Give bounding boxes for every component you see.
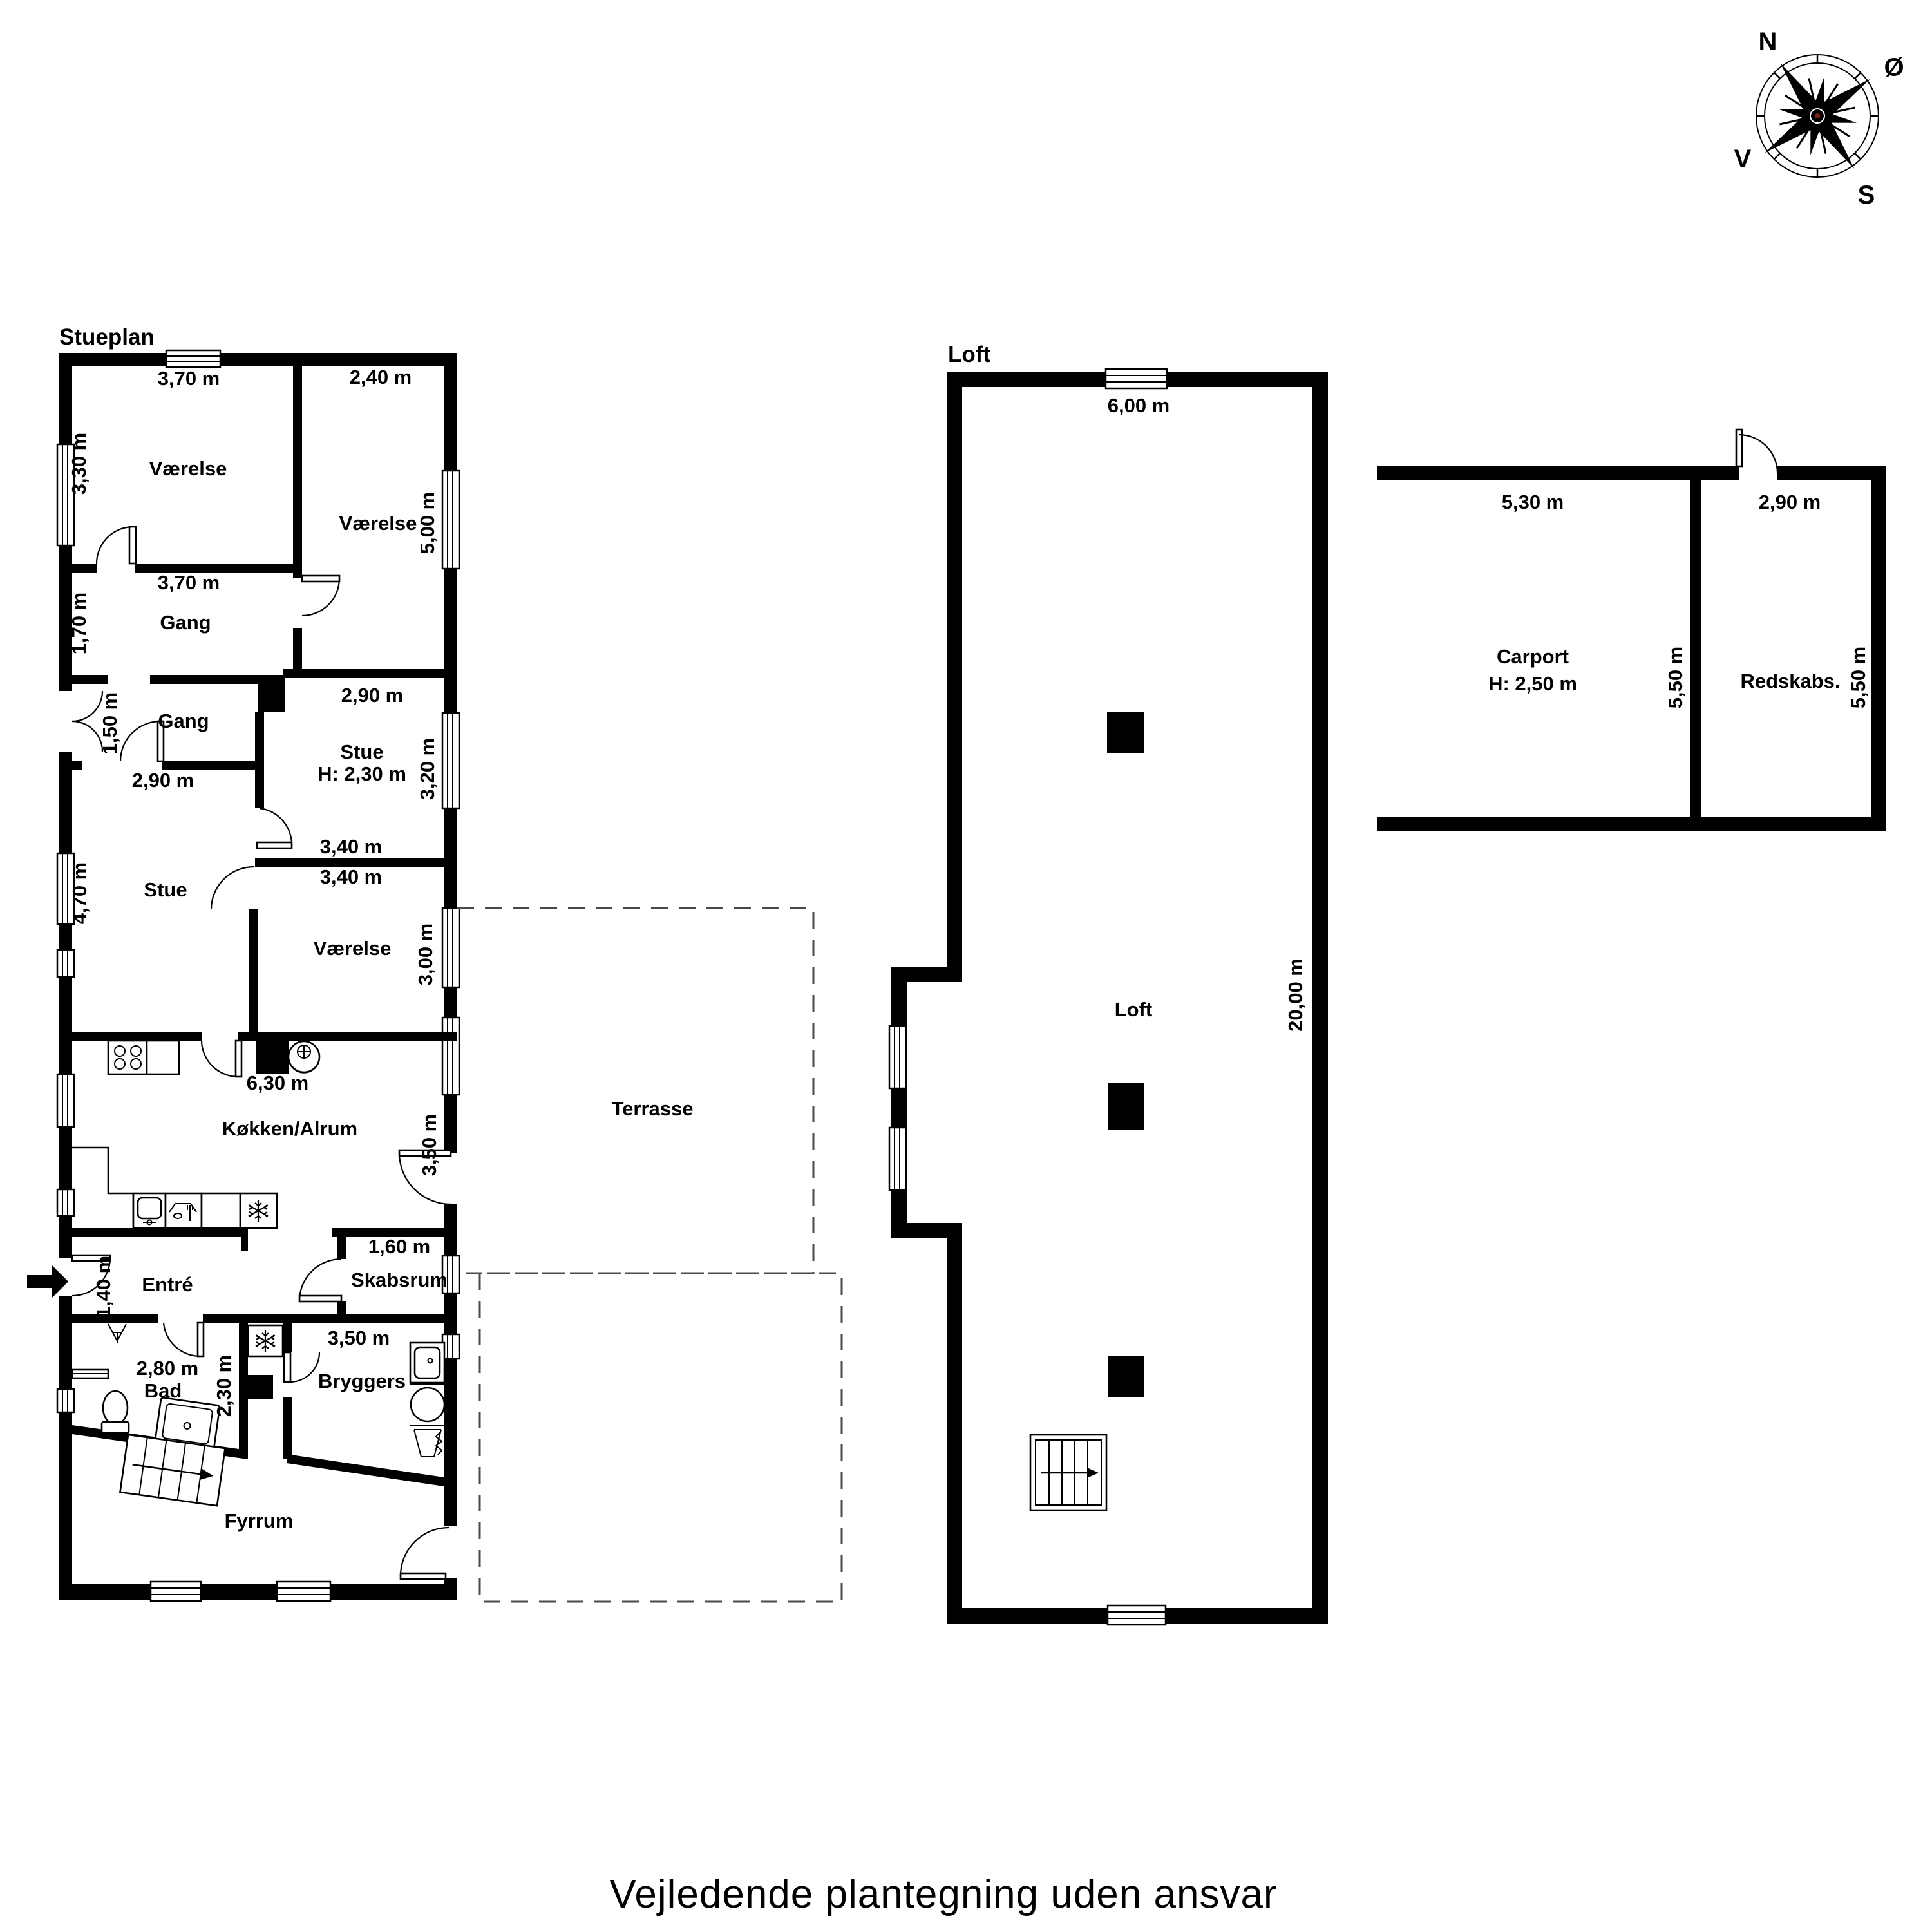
dim-koekken-right: 3,50 m xyxy=(418,1114,440,1177)
room-label-loft: Loft xyxy=(1115,998,1153,1021)
dim-gang-upper-left: 1,70 m xyxy=(68,592,90,655)
chimney-block xyxy=(1108,1356,1144,1397)
floorplan-canvas: Stueplan xyxy=(0,0,1932,1932)
chimney-block xyxy=(1108,1083,1144,1130)
room-label-bad: Bad xyxy=(144,1379,182,1402)
door-icon xyxy=(302,576,339,616)
dim-vaerelse-nw-top: 3,70 m xyxy=(158,367,220,390)
window-icon xyxy=(1108,1605,1166,1625)
room-label-koekken-alrum: Køkken/Alrum xyxy=(222,1117,357,1140)
compass-north-label: N xyxy=(1759,28,1777,56)
dim-loft-top: 6,00 m xyxy=(1108,394,1170,417)
dim-gang-lower-bottom: 2,90 m xyxy=(132,769,194,791)
compass-west-label: V xyxy=(1734,145,1752,173)
dim-redskabs-top: 2,90 m xyxy=(1759,491,1821,513)
outbuilding-walls xyxy=(1377,466,1886,831)
door-icon xyxy=(299,1259,341,1302)
washing-machine-icon xyxy=(410,1384,444,1425)
door-icon xyxy=(401,1528,449,1579)
room-label-fyrrum: Fyrrum xyxy=(225,1510,294,1532)
dim-stue-lille-right: 3,20 m xyxy=(416,738,439,800)
room-label-carport: Carport xyxy=(1497,645,1569,668)
window-icon xyxy=(277,1582,330,1601)
wood-stove-icon xyxy=(289,1041,319,1073)
toilet-icon xyxy=(102,1391,129,1433)
fridge-icon xyxy=(240,1193,277,1228)
dim-redskabs-right: 5,50 m xyxy=(1847,647,1870,709)
dim-gang-lower-left: 1,50 m xyxy=(99,692,121,755)
window-icon xyxy=(57,1074,74,1127)
dim-skabsrum-top: 1,60 m xyxy=(368,1235,431,1258)
dim-bad-right: 2,30 m xyxy=(213,1355,235,1417)
bad-fixtures xyxy=(72,1324,444,1506)
freezer-icon xyxy=(248,1325,283,1356)
dim-stue-lille-top: 2,90 m xyxy=(341,684,404,706)
dim-vaerelse-nw-left: 3,30 m xyxy=(68,433,90,495)
door-icon xyxy=(1736,430,1777,473)
room-label-bryggers: Bryggers xyxy=(318,1370,406,1392)
door-icon xyxy=(120,721,164,761)
window-icon xyxy=(442,1018,459,1095)
laundry-sink-icon xyxy=(410,1343,444,1383)
compass-east-label: Ø xyxy=(1884,53,1904,82)
slanted-wall xyxy=(287,1454,457,1488)
window-icon xyxy=(442,908,459,987)
disclaimer-text: Vejledende plantegning uden ansvar xyxy=(609,1872,1277,1917)
dim-loft-right: 20,00 m xyxy=(1284,958,1307,1032)
window-icon xyxy=(889,1128,906,1190)
window-icon xyxy=(166,350,220,367)
door-icon xyxy=(284,1352,319,1382)
room-label-vaerelse-midt: Værelse xyxy=(314,937,392,960)
loft-plan: Loft xyxy=(889,342,1328,1625)
door-icon xyxy=(164,1323,204,1356)
dim-vaerelse-ne-right: 5,00 m xyxy=(416,492,439,554)
radiator xyxy=(72,1370,108,1378)
dim-stue-lille-bottom: 3,40 m xyxy=(320,835,383,858)
door-icon xyxy=(97,527,136,563)
compass-south-label: S xyxy=(1858,181,1875,209)
room-label-skabsrum: Skabsrum xyxy=(351,1269,448,1291)
door-icon xyxy=(211,867,254,909)
window-icon xyxy=(57,1189,74,1216)
compass-rose-icon: N Ø S V xyxy=(1728,26,1908,209)
outbuilding-plan: 5,30 m 2,90 m Carport H: 2,50 m 5,50 m R… xyxy=(1377,430,1886,831)
chimney-block xyxy=(1107,712,1144,753)
washbasin-icon xyxy=(108,1324,126,1343)
loft-windows xyxy=(889,369,1167,1625)
cabinet xyxy=(202,1193,240,1228)
stueplan-plan: Stueplan xyxy=(27,325,842,1602)
dishwasher-icon xyxy=(166,1193,202,1228)
room-label-stue: Stue xyxy=(144,878,187,901)
ceiling-height-carport: H: 2,50 m xyxy=(1488,672,1577,695)
dim-vaerelse-ne-top: 2,40 m xyxy=(350,366,412,388)
loft-walls xyxy=(891,372,1328,1624)
double-door-icon xyxy=(72,691,102,752)
terrasse-outline xyxy=(457,908,842,1602)
room-label-terrasse: Terrasse xyxy=(612,1097,694,1120)
entrance-arrow-icon xyxy=(27,1265,68,1298)
stove-icon xyxy=(108,1041,179,1074)
stueplan-title: Stueplan xyxy=(59,325,155,350)
chimney-block xyxy=(246,1375,273,1399)
room-label-vaerelse-nw: Værelse xyxy=(149,457,227,480)
dim-bad-top: 2,80 m xyxy=(137,1357,199,1379)
window-icon xyxy=(57,950,74,977)
room-label-gang-upper: Gang xyxy=(160,611,211,634)
dim-entre-left: 1,40 m xyxy=(92,1256,115,1318)
loft-title: Loft xyxy=(948,342,990,367)
stairs-icon xyxy=(1030,1435,1106,1510)
dim-bryggers-top: 3,50 m xyxy=(328,1327,390,1349)
window-icon xyxy=(442,713,459,808)
dim-carport-right: 5,50 m xyxy=(1664,647,1687,709)
dim-koekken-top: 6,30 m xyxy=(247,1072,309,1094)
sink-icon xyxy=(133,1193,166,1228)
window-icon xyxy=(442,471,459,569)
counter-edge xyxy=(72,1148,133,1228)
door-icon xyxy=(202,1041,241,1077)
laundry-basket-icon xyxy=(414,1430,442,1457)
window-icon xyxy=(889,1026,906,1088)
door-icon xyxy=(257,808,292,848)
room-label-vaerelse-ne: Værelse xyxy=(339,512,417,535)
stairs-icon xyxy=(120,1435,225,1506)
window-icon xyxy=(1106,369,1167,388)
room-label-redskabsrum: Redskabs. xyxy=(1740,670,1840,692)
ceiling-height-stue-lille: H: 2,30 m xyxy=(317,762,406,785)
chimney-block xyxy=(258,675,285,712)
room-label-entre: Entré xyxy=(142,1273,193,1296)
dim-stue-left: 4,70 m xyxy=(68,862,91,925)
dim-gang-upper-top: 3,70 m xyxy=(158,571,220,594)
dim-vaerelse-midt-right: 3,00 m xyxy=(414,923,437,986)
room-label-gang-lower: Gang xyxy=(158,710,209,732)
dim-vaerelse-midt-top: 3,40 m xyxy=(320,866,383,888)
window-icon xyxy=(57,1389,74,1412)
window-icon xyxy=(151,1582,201,1601)
room-label-stue-lille: Stue xyxy=(340,741,383,763)
dim-carport-top: 5,30 m xyxy=(1502,491,1564,513)
chimney-block xyxy=(256,1041,289,1074)
